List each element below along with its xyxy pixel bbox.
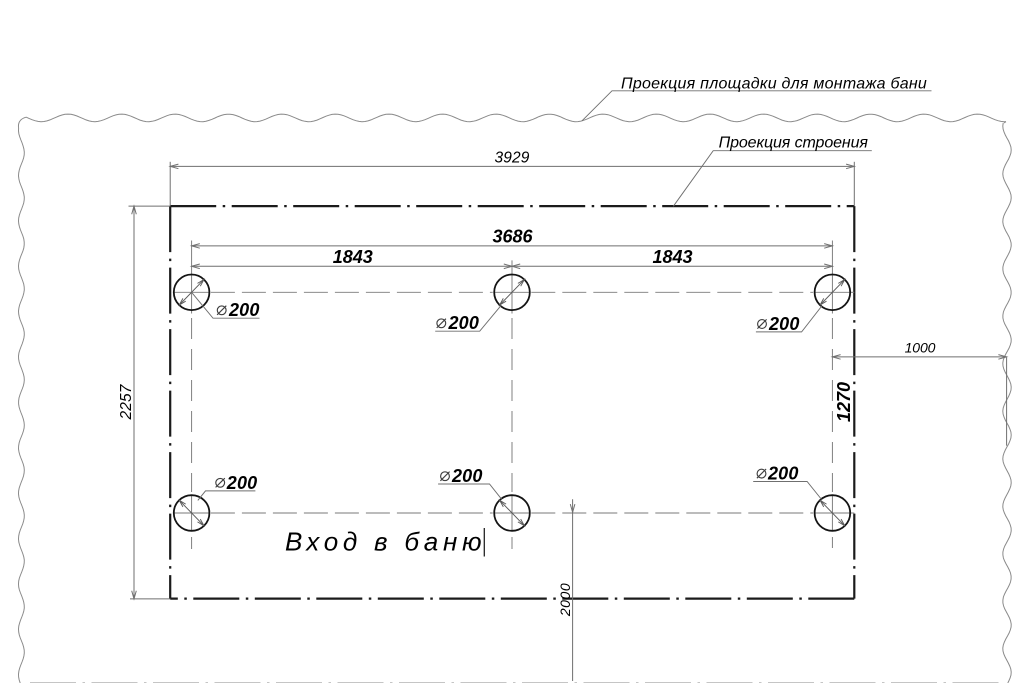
- svg-text:200: 200: [448, 313, 479, 333]
- svg-text:200: 200: [451, 466, 482, 486]
- svg-text:1843: 1843: [333, 247, 373, 267]
- svg-text:3686: 3686: [492, 227, 533, 247]
- svg-text:2257: 2257: [118, 383, 135, 420]
- svg-text:200: 200: [767, 464, 798, 484]
- svg-text:1843: 1843: [652, 247, 692, 267]
- svg-text:200: 200: [226, 473, 257, 493]
- svg-text:Вход в баню: Вход в баню: [285, 527, 486, 557]
- svg-text:Проекция строения: Проекция строения: [719, 135, 869, 152]
- svg-text:1270: 1270: [834, 382, 854, 422]
- svg-text:Проекция площадки для монтажа: Проекция площадки для монтажа бани: [621, 75, 927, 92]
- svg-text:200: 200: [768, 314, 799, 334]
- svg-text:200: 200: [228, 300, 259, 320]
- svg-text:3929: 3929: [494, 150, 529, 167]
- svg-text:1000: 1000: [905, 340, 936, 356]
- svg-text:2000: 2000: [557, 583, 573, 617]
